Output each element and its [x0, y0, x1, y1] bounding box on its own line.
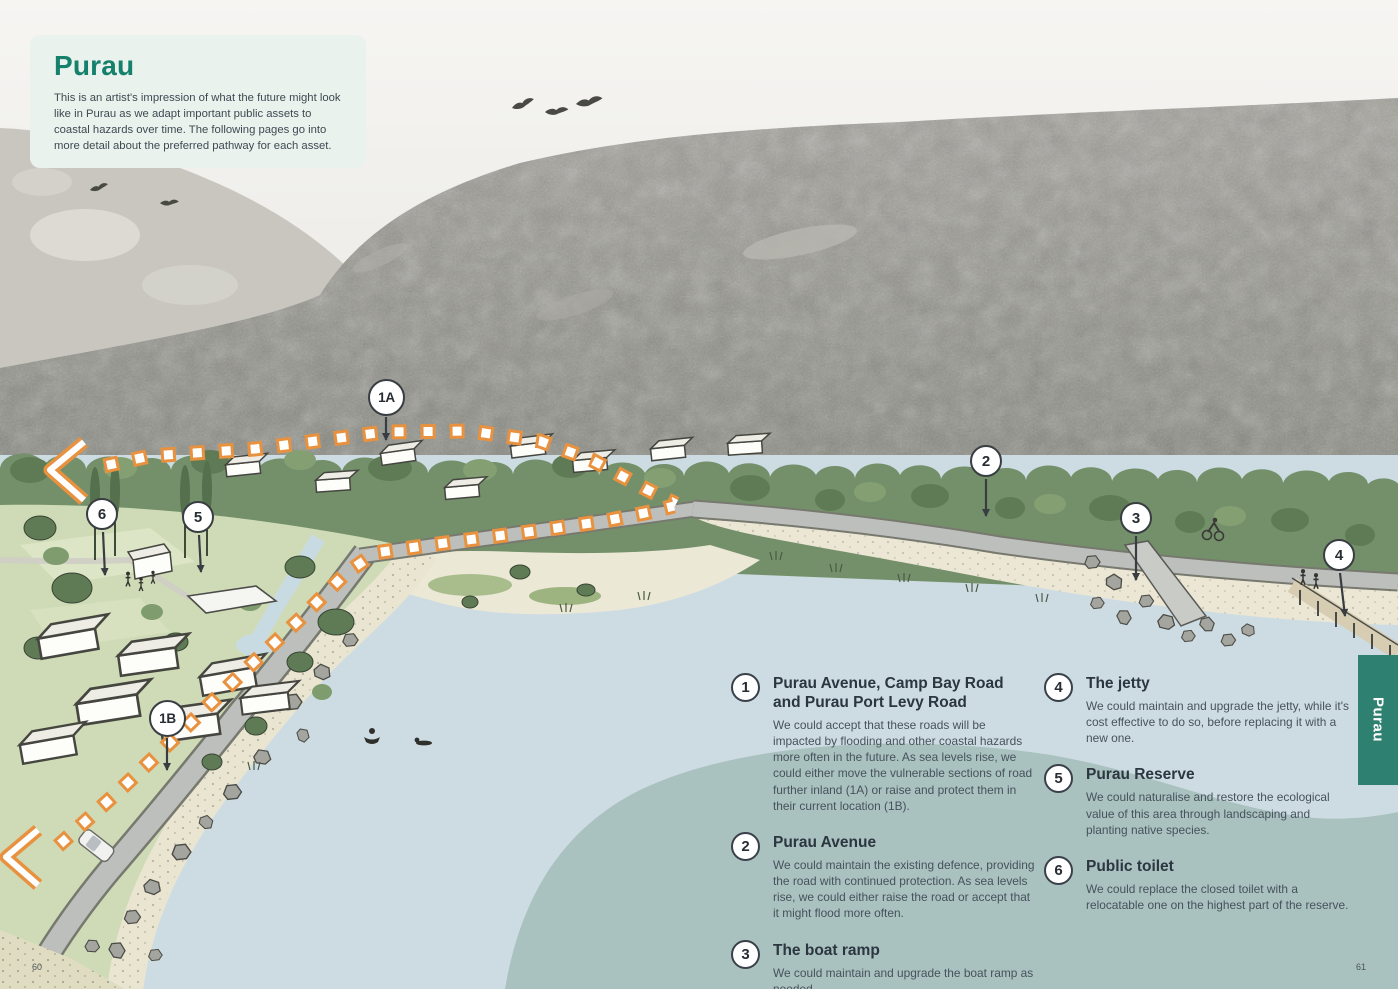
- legend-body-1: We could accept that these roads will be…: [773, 717, 1036, 814]
- legend-column-2: 4 The jetty We could maintain and upgrad…: [1044, 672, 1349, 930]
- section-tab-label: Purau: [1370, 697, 1387, 742]
- legend-title-4: The jetty: [1086, 675, 1320, 694]
- legend-body-5: We could naturalise and restore the ecol…: [1086, 789, 1349, 838]
- legend-item-3: 3 The boat ramp We could maintain and up…: [731, 939, 1036, 989]
- legend-title-2: Purau Avenue: [773, 834, 1007, 853]
- legend-number-1: 1: [731, 673, 760, 702]
- map-marker-4: 4: [1323, 539, 1355, 571]
- legend-title-3: The boat ramp: [773, 942, 1007, 961]
- map-marker-5: 5: [182, 501, 214, 533]
- page-title: Purau: [54, 52, 342, 80]
- legend-item-5: 5 Purau Reserve We could naturalise and …: [1044, 763, 1349, 837]
- map-marker-2: 2: [970, 445, 1002, 477]
- legend-column-1: 1 Purau Avenue, Camp Bay Road and Purau …: [731, 672, 1036, 989]
- legend-item-6: 6 Public toilet We could replace the clo…: [1044, 855, 1349, 913]
- legend-body-4: We could maintain and upgrade the jetty,…: [1086, 698, 1349, 747]
- map-marker-3: 3: [1120, 502, 1152, 534]
- intro-text: This is an artist's impression of what t…: [54, 90, 346, 154]
- legend-title-6: Public toilet: [1086, 858, 1320, 877]
- legend-body-2: We could maintain the existing defence, …: [773, 857, 1036, 922]
- legend-body-3: We could maintain and upgrade the boat r…: [773, 965, 1036, 989]
- page-number-right: 61: [1356, 962, 1366, 972]
- map-marker-1a: 1A: [368, 379, 405, 416]
- map-marker-1b: 1B: [149, 700, 186, 737]
- legend-body-6: We could replace the closed toilet with …: [1086, 881, 1349, 913]
- legend-title-1: Purau Avenue, Camp Bay Road and Purau Po…: [773, 675, 1007, 713]
- legend-title-5: Purau Reserve: [1086, 766, 1320, 785]
- legend-item-4: 4 The jetty We could maintain and upgrad…: [1044, 672, 1349, 746]
- legend-number-6: 6: [1044, 856, 1073, 885]
- intro-card: Purau This is an artist's impression of …: [30, 35, 366, 168]
- legend-item-1: 1 Purau Avenue, Camp Bay Road and Purau …: [731, 672, 1036, 814]
- report-page: Purau This is an artist's impression of …: [0, 0, 1398, 989]
- legend-item-2: 2 Purau Avenue We could maintain the exi…: [731, 831, 1036, 922]
- page-number-left: 60: [32, 962, 42, 972]
- legend-number-3: 3: [731, 940, 760, 969]
- legend-number-5: 5: [1044, 764, 1073, 793]
- legend-number-4: 4: [1044, 673, 1073, 702]
- map-marker-6: 6: [86, 498, 118, 530]
- legend-number-2: 2: [731, 832, 760, 861]
- section-tab-purau[interactable]: Purau: [1358, 655, 1398, 785]
